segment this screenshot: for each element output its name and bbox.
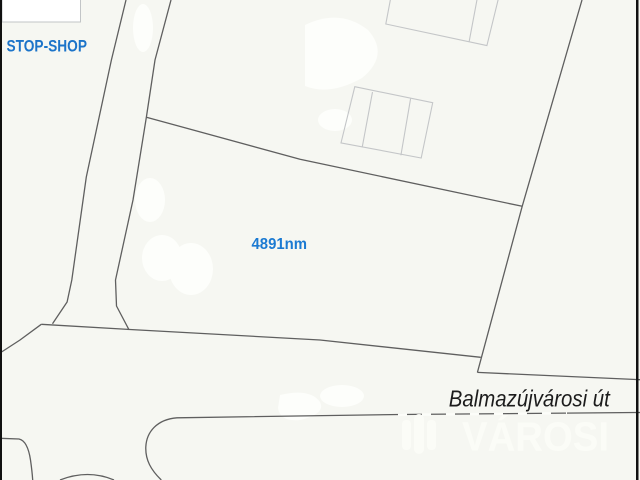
svg-text:STOP-SHOP: STOP-SHOP [7, 36, 88, 55]
svg-text:Balmazújvárosi út: Balmazújvárosi út [449, 385, 611, 411]
svg-text:4891nm: 4891nm [252, 236, 308, 253]
svg-text:VÁROSI: VÁROSI [462, 414, 609, 460]
